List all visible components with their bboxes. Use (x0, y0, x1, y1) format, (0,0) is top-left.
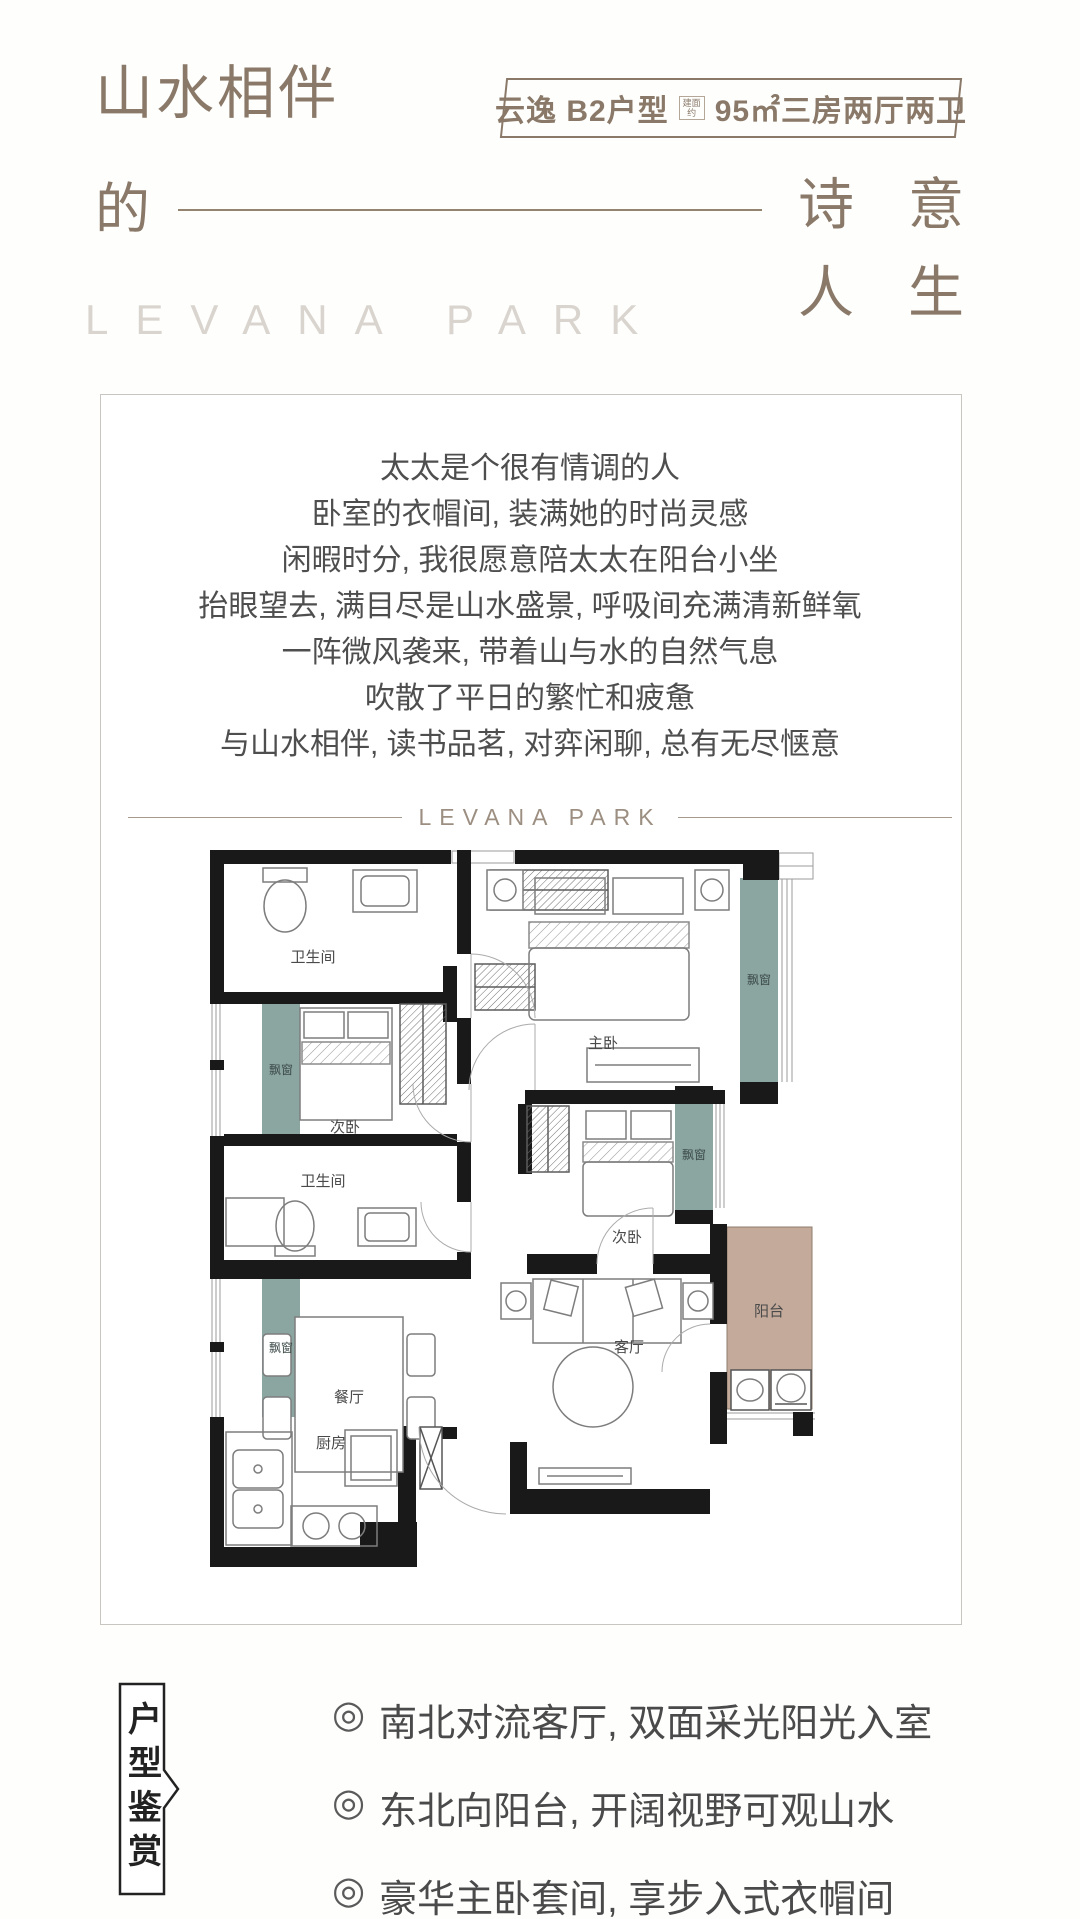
divider-line-right (678, 817, 952, 818)
brand-divider: LEVANA PARK (128, 804, 952, 831)
unit-spec: 95㎡三房两厅两卫 (715, 86, 967, 130)
paragraph-line: 太太是个很有情调的人 (100, 446, 960, 492)
story-paragraph: 太太是个很有情调的人 卧室的衣帽间, 装满她的时尚灵感 闲暇时分, 我很愿意陪太… (100, 446, 960, 768)
bay-window-label: 飘窗 (682, 1148, 706, 1162)
feature-bullet: ◎ 豪华主卧套间, 享步入式衣帽间 (332, 1868, 932, 1919)
duct-icon (420, 1427, 442, 1489)
bullet-marker-icon: ◎ (332, 1868, 365, 1913)
paragraph-line: 抬眼望去, 满目尽是山水盛景, 呼吸间充满清新鲜氧 (100, 584, 960, 630)
room-label-bathroom-mid: 卫生间 (300, 1173, 345, 1190)
wardrobe-icon (475, 964, 535, 1010)
room-label-dining: 餐厅 (334, 1389, 364, 1406)
feature-bullet: ◎ 东北向阳台, 开阔视野可观山水 (332, 1780, 932, 1835)
room-label-balcony: 阳台 (754, 1303, 784, 1320)
poster-page: 山水相伴 的 云逸 B2户型 建面约 95㎡三房两厅两卫 诗 意 人 生 LEV… (0, 0, 1080, 1919)
bullet-text: 东北向阳台, 开阔视野可观山水 (379, 1780, 894, 1835)
bullet-text: 南北对流客厅, 双面采光阳光入室 (379, 1692, 932, 1747)
slogan-row-2: 人 生 (798, 248, 964, 329)
room-label-master: 主卧 (588, 1035, 618, 1052)
paragraph-line: 吹散了平日的繁忙和疲惫 (100, 676, 960, 722)
paragraph-line: 与山水相伴, 读书品茗, 对弈闲聊, 总有无尽惬意 (100, 722, 960, 768)
slogan-char: 诗 (798, 160, 854, 241)
unit-name: 云逸 B2户型 (495, 86, 669, 130)
paragraph-line: 闲暇时分, 我很愿意陪太太在阳台小坐 (100, 538, 960, 584)
main-title: 山水相伴 (95, 46, 339, 130)
bay-window-label: 飘窗 (747, 973, 771, 987)
slogan-row-1: 诗 意 (798, 160, 964, 241)
paragraph-line: 一阵微风袭来, 带着山与水的自然气息 (100, 630, 960, 676)
bullet-marker-icon: ◎ (332, 1692, 365, 1737)
slogan-char: 意 (908, 160, 964, 241)
tag-label: 户型鉴赏 (118, 1682, 166, 1896)
paragraph-line: 卧室的衣帽间, 装满她的时尚灵感 (100, 492, 960, 538)
slogan-char: 生 (908, 248, 964, 329)
slogan-char: 人 (798, 248, 854, 329)
room-label-bedroom-right: 次卧 (612, 1229, 642, 1246)
room-label-bedroom-left: 次卧 (330, 1119, 360, 1136)
brand-watermark: LEVANA PARK (85, 296, 665, 344)
unit-badge: 云逸 B2户型 建面约 95㎡三房两厅两卫 (500, 78, 962, 138)
bay-window-label: 飘窗 (269, 1341, 293, 1355)
main-title-particle: 的 (95, 164, 150, 244)
wardrobe-icon (527, 1106, 569, 1172)
room-label-living: 客厅 (614, 1339, 644, 1356)
bay-window-label: 飘窗 (269, 1063, 293, 1077)
room-label-bathroom-top: 卫生间 (290, 949, 335, 966)
floor-plan: 卫生间 次卧 卫生间 餐厅 厨房 主卧 次卧 客厅 阳台 飘窗 飘窗 飘窗 飘窗 (195, 842, 815, 1617)
unit-area-note: 建面约 (679, 96, 705, 120)
bullet-marker-icon: ◎ (332, 1780, 365, 1825)
title-rule-line (178, 209, 762, 211)
feature-bullets: ◎ 南北对流客厅, 双面采光阳光入室 ◎ 东北向阳台, 开阔视野可观山水 ◎ 豪… (332, 1692, 932, 1919)
bullet-text: 豪华主卧套间, 享步入式衣帽间 (379, 1868, 894, 1919)
wardrobe-icon (400, 1004, 446, 1104)
divider-brand-label: LEVANA PARK (402, 804, 677, 831)
divider-line-left (128, 817, 402, 818)
feature-bullet: ◎ 南北对流客厅, 双面采光阳光入室 (332, 1692, 932, 1747)
room-label-kitchen: 厨房 (316, 1435, 346, 1452)
